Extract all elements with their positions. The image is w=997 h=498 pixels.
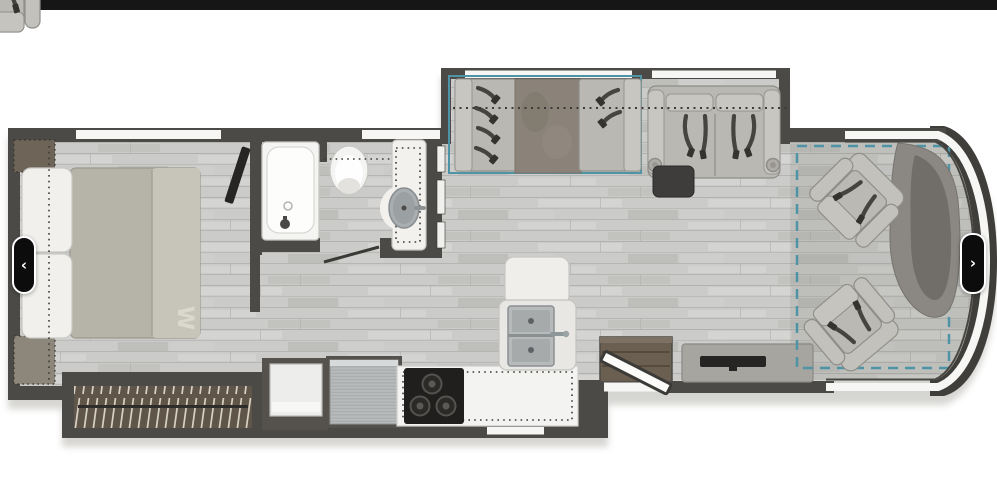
ottoman [653, 166, 694, 197]
refrigerator [326, 356, 402, 428]
rv-floorplan-image: W [0, 0, 997, 498]
dinette-bench-right [579, 79, 641, 171]
captain-chair-proto [0, 0, 40, 32]
wardrobe-closet [62, 372, 262, 437]
kitchen-sink-island [499, 257, 576, 370]
bathtub [262, 142, 319, 240]
toilet [330, 146, 368, 194]
dinette-booth [449, 76, 641, 173]
carousel-next-button[interactable]: › [960, 233, 986, 294]
floorplan-viewer: W [0, 0, 997, 498]
carousel-prev-button[interactable]: ‹ [12, 236, 36, 294]
chevron-left-icon: ‹ [21, 258, 27, 273]
cabinet-washer-prep [262, 358, 328, 430]
chevron-right-icon: › [970, 256, 976, 271]
hanger-rod [78, 405, 248, 408]
living-tv [700, 356, 766, 367]
tv-cabinet [682, 344, 813, 382]
cooktop [404, 368, 464, 424]
bed-monogram: W [172, 306, 197, 330]
dinette-bench-left [455, 79, 517, 171]
nightstand-top [14, 140, 55, 172]
kitchen-counter [397, 366, 578, 426]
sofa [648, 86, 780, 178]
dinette-table [515, 79, 581, 173]
bathroom-wall-inserts [437, 146, 445, 248]
